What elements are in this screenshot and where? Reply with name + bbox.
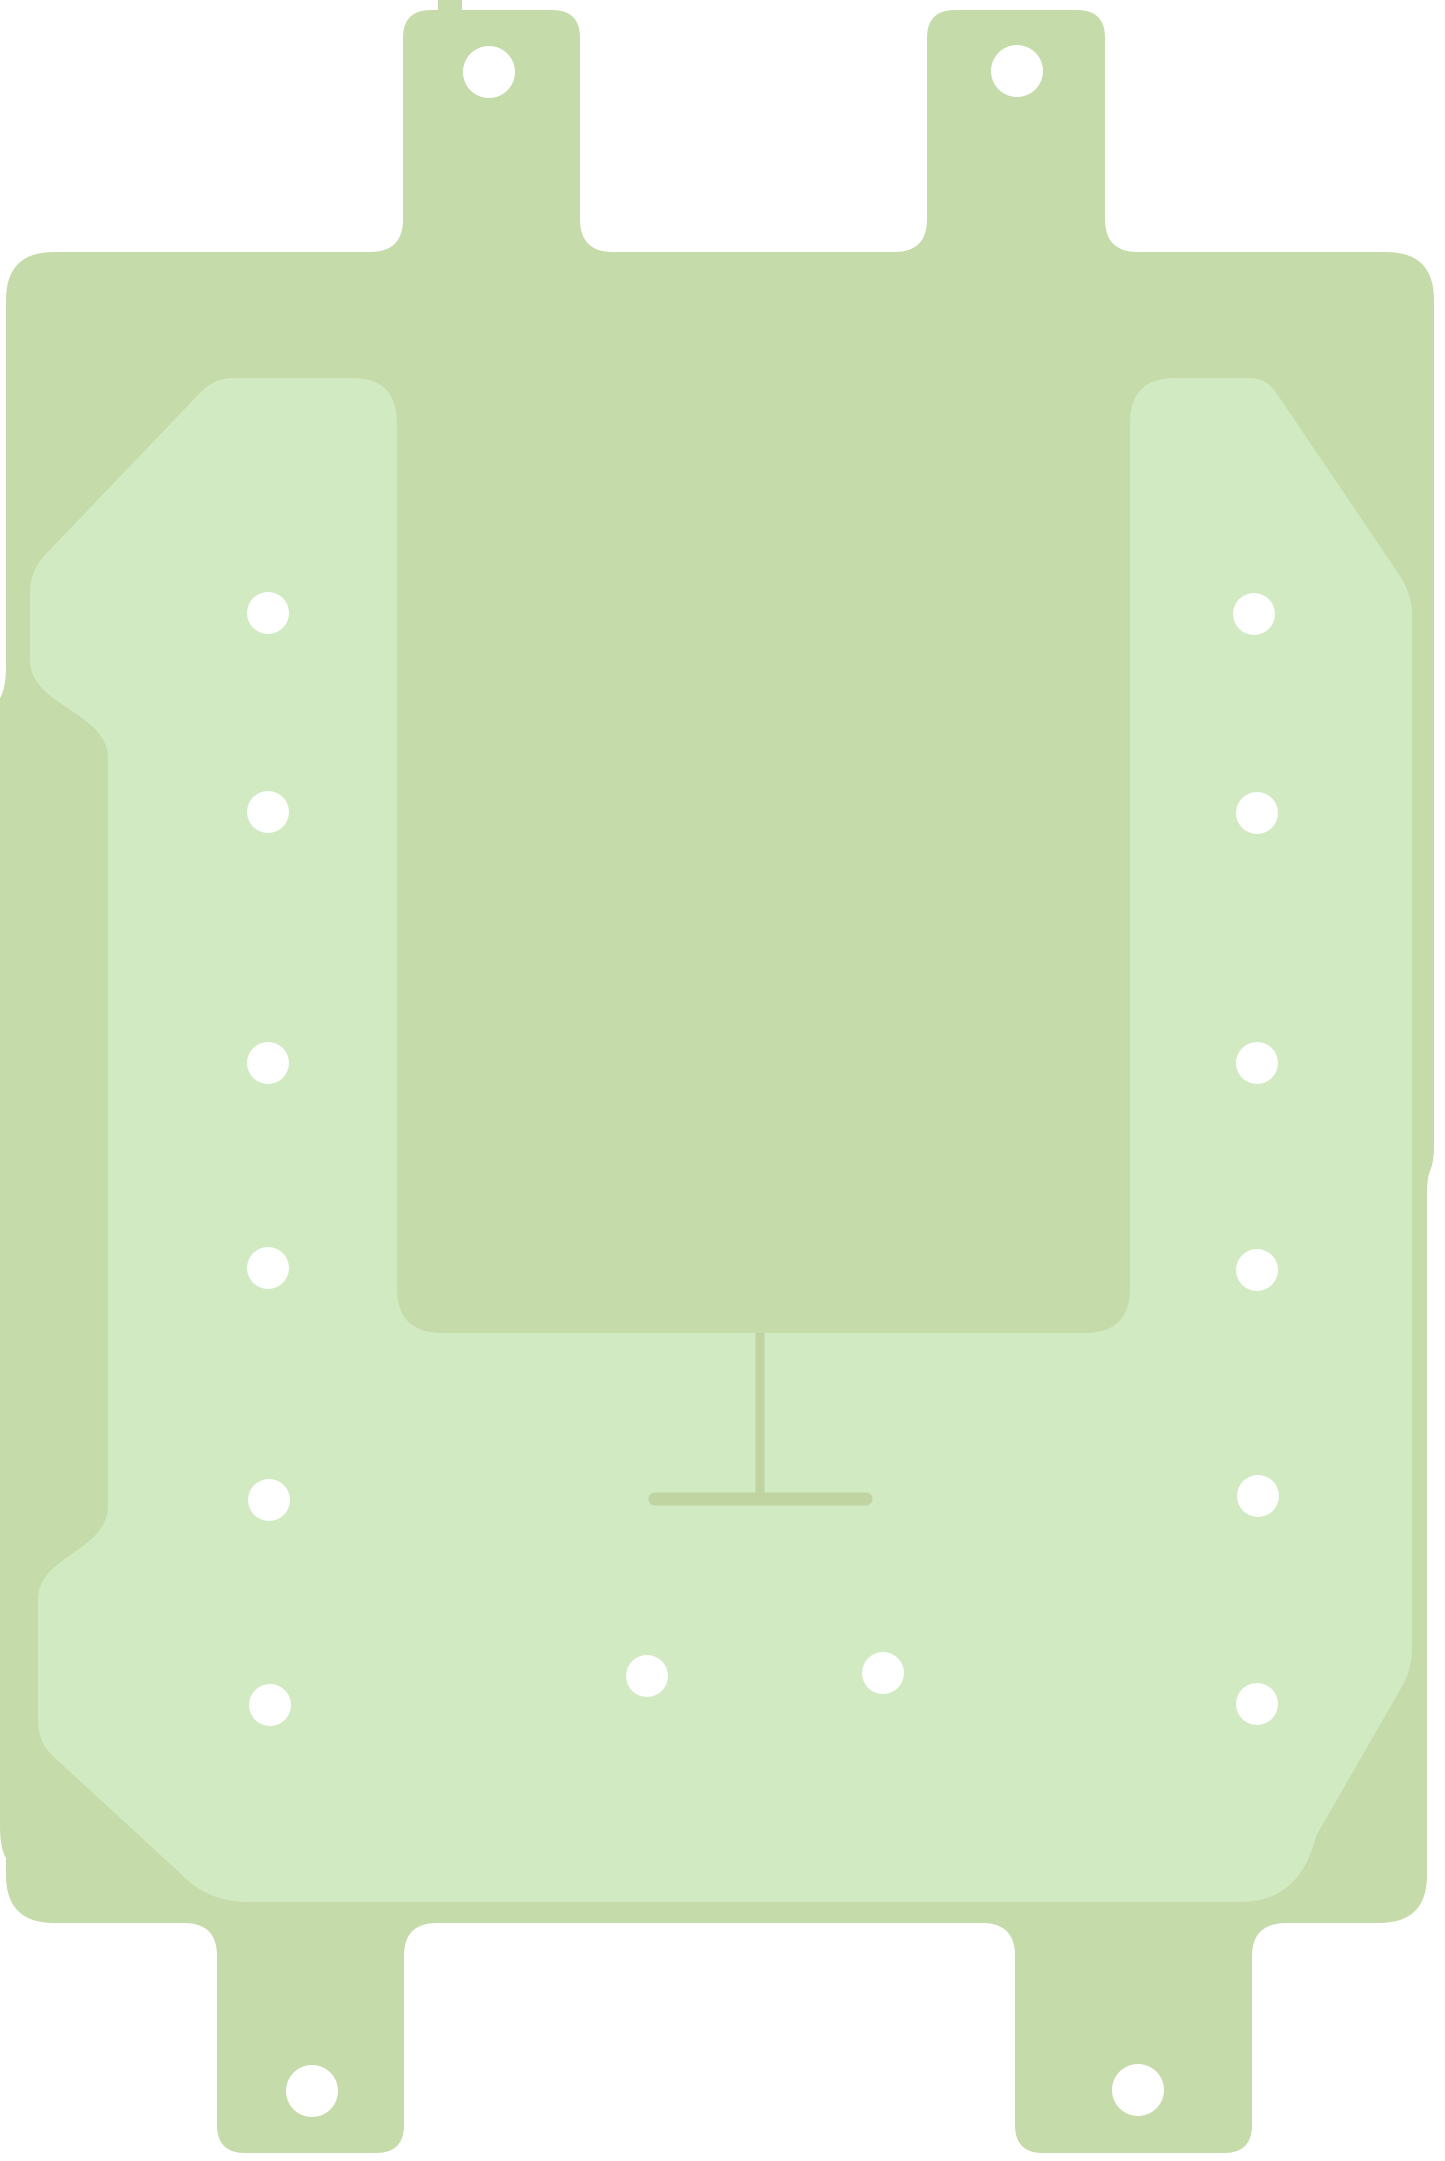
adhesive-sheet-svg (0, 0, 1445, 2161)
punch-hole (626, 1655, 668, 1697)
tab-hole (991, 45, 1043, 97)
punch-hole (247, 592, 289, 634)
punch-hole (1233, 593, 1275, 635)
tab-hole (463, 46, 515, 98)
punch-hole (248, 1479, 290, 1521)
punch-hole (1236, 1683, 1278, 1725)
punch-hole (247, 1042, 289, 1084)
punch-hole (1236, 1042, 1278, 1084)
punch-hole (247, 1247, 289, 1289)
punch-hole (247, 791, 289, 833)
punch-hole (862, 1652, 904, 1694)
adhesive-sheet-image (0, 0, 1445, 2161)
punch-hole (249, 1684, 291, 1726)
punch-hole (1236, 1249, 1278, 1291)
punch-hole (1236, 792, 1278, 834)
tab-hole (1112, 2064, 1164, 2116)
tab-hole (286, 2065, 338, 2117)
punch-hole (1237, 1475, 1279, 1517)
